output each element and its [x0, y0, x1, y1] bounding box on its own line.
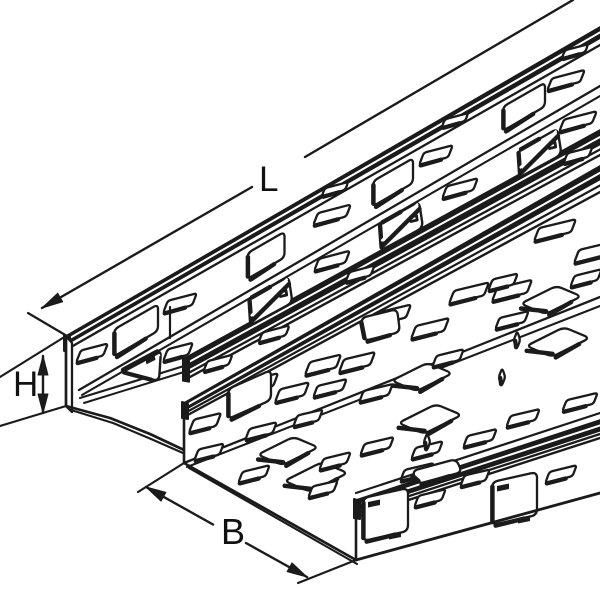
svg-text:L: L — [259, 160, 278, 199]
svg-text:H: H — [13, 365, 38, 404]
svg-text:B: B — [221, 511, 245, 552]
